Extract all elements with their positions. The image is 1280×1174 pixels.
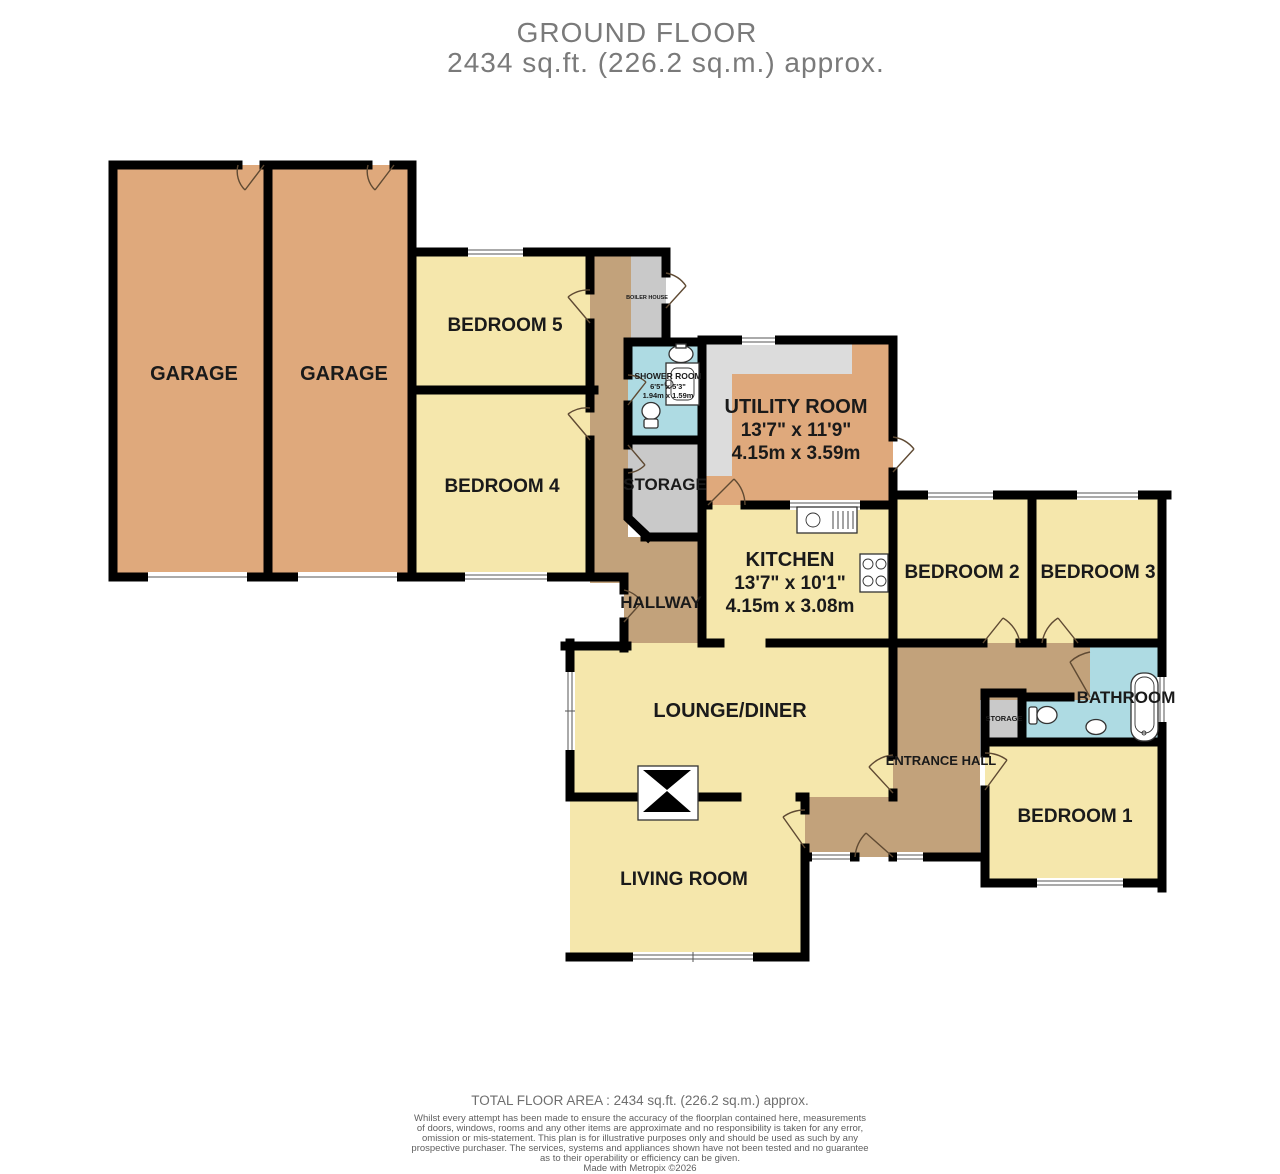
- floorplan-page: GROUND FLOOR 2434 sq.ft. (226.2 sq.m.) a…: [0, 0, 1280, 1174]
- shower-toilet: [642, 403, 660, 429]
- entrance-hall-floor-ext: [805, 797, 893, 857]
- fireplace: [638, 766, 698, 820]
- title-floor: GROUND FLOOR: [517, 17, 758, 48]
- lounge-window: [565, 672, 575, 750]
- kitchen-hob: [860, 554, 888, 592]
- bedroom4-window: [465, 572, 547, 582]
- bathroom-sink: [1086, 720, 1106, 735]
- kitchen-dims-metric: 4.15m x 3.08m: [726, 596, 855, 617]
- storage-label: STORAGE: [623, 475, 707, 494]
- living-room-label: LIVING ROOM: [620, 869, 748, 890]
- bathtub: [1131, 673, 1158, 741]
- storage-small-label: STORAGE: [986, 714, 1023, 723]
- lounge-diner-label: LOUNGE/DINER: [653, 700, 807, 722]
- bedroom1-window: [1037, 878, 1123, 888]
- kitchen-dims-imperial: 13'7" x 10'1": [734, 573, 846, 594]
- shower-room-label: SHOWER ROOM: [634, 371, 701, 381]
- entrance-hall-label: ENTRANCE HALL: [886, 753, 997, 768]
- bedroom4-label: BEDROOM 4: [444, 476, 560, 497]
- bedroom1-label: BEDROOM 1: [1017, 806, 1133, 827]
- title-area: 2434 sq.ft. (226.2 sq.m.) approx.: [447, 47, 885, 78]
- kitchen-sink: [797, 507, 857, 533]
- footer: TOTAL FLOOR AREA : 2434 sq.ft. (226.2 sq…: [411, 1093, 868, 1174]
- hallway-label: HALLWAY: [620, 593, 702, 612]
- bedroom3-window: [1077, 490, 1138, 500]
- hall-window-right: [897, 852, 923, 862]
- shower-room-dims-imperial: 6'5" x 5'3": [650, 382, 686, 391]
- bathroom-label: BATHROOM: [1077, 688, 1176, 707]
- kitchen-label: KITCHEN: [746, 549, 835, 571]
- bedroom2-label: BEDROOM 2: [904, 562, 1019, 583]
- hall-window-left: [812, 852, 850, 862]
- utility-window: [742, 335, 775, 345]
- garage-right-door-opening: [298, 572, 397, 582]
- garage-right-label: GARAGE: [300, 363, 388, 385]
- utility-room-dims-metric: 4.15m x 3.59m: [732, 443, 861, 464]
- bedroom5-label: BEDROOM 5: [447, 315, 563, 336]
- bedroom2-window: [928, 490, 993, 500]
- garage-left-door-opening: [148, 572, 247, 582]
- bedroom5-window: [468, 247, 523, 257]
- garage-left-label: GARAGE: [150, 363, 238, 385]
- boiler-house-exterior-door: [666, 273, 686, 308]
- plan-title: GROUND FLOOR 2434 sq.ft. (226.2 sq.m.) a…: [447, 17, 885, 78]
- boiler-house-label: BOILER HOUSE: [626, 295, 668, 301]
- bathroom-toilet: [1029, 707, 1057, 725]
- shower-room-dims-metric: 1.94m x 1.59m: [643, 391, 694, 400]
- bedroom3-label: BEDROOM 3: [1040, 562, 1155, 583]
- utility-room-label: UTILITY ROOM: [725, 396, 868, 418]
- utility-room-dims-imperial: 13'7" x 11'9": [741, 420, 852, 441]
- floorplan-canvas: GROUND FLOOR 2434 sq.ft. (226.2 sq.m.) a…: [0, 0, 1280, 1174]
- living-room-window: [633, 952, 753, 962]
- entrance-hall-floor-main: [893, 643, 980, 857]
- total-floor-area: TOTAL FLOOR AREA : 2434 sq.ft. (226.2 sq…: [471, 1093, 808, 1108]
- utility-exterior-door: [893, 437, 914, 472]
- metropix-credit: Made with Metropix ©2026: [583, 1163, 696, 1174]
